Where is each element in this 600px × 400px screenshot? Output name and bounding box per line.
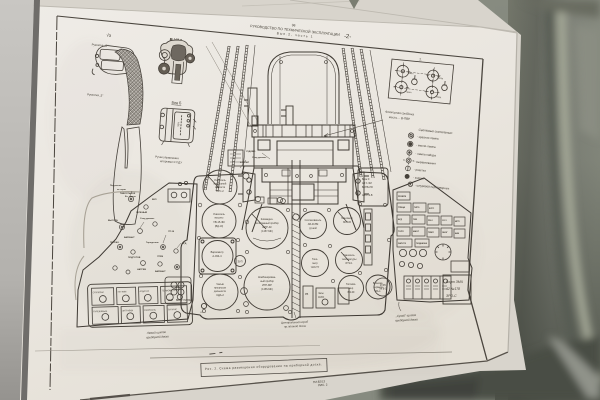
svg-text:АЧХО: АЧХО [318,296,324,299]
svg-text:(ВД-10): (ВД-10) [215,225,223,228]
svg-text:ПЕРКАЧ: ПЕРКАЧ [110,241,119,244]
svg-text:АЗ У-ЧМ: АЗ У-ЧМ [362,182,372,185]
svg-text:мер: мер [349,287,354,290]
svg-text:ИТЭ-1: ИТЭ-1 [345,262,353,265]
svg-text:ВКЛ: ВКЛ [152,199,157,201]
svg-text:пр.лётной доски: пр.лётной доски [284,324,307,329]
svg-text:НА-7ММ: НА-7ММ [118,290,127,293]
svg-text:ПТИЦА: ПТИЦА [398,206,406,209]
svg-text:БАЛАНС: БАЛАНС [168,308,177,311]
svg-text:скорости: скорости [215,186,226,189]
svg-text:Часы: Часы [318,293,324,295]
svg-text:-2-: -2- [344,34,352,41]
svg-text:√з: √з [106,33,111,38]
svg-text:температуры: температуры [342,258,357,261]
svg-text:Сход данных: Сход данных [252,157,267,159]
svg-text:РУЛЕЖЕВЫЕ: РУЛЕЖЕВЫЕ [93,311,108,313]
svg-text:СОЧ: СОЧ [442,220,447,222]
svg-text:ВАРИАНТ: ВАРИАНТ [155,270,166,273]
svg-text:КУРС: КУРС [429,208,435,210]
svg-text:ЗРО-С: ЗРО-С [446,294,457,298]
svg-text:Топливо-: Топливо- [346,283,356,286]
svg-text:ПОДГОТОВ: ПОДГОТОВ [128,257,141,259]
svg-text:ВАРИАНТ: ВАРИАНТ [124,236,135,239]
svg-text:Ел. щиток: Ел. щиток [125,196,137,198]
svg-text:Вариометр: Вариометр [211,251,224,254]
svg-text:Комбинирован-: Комбинирован- [258,276,276,279]
svg-text:Манометр: Манометр [341,217,353,220]
svg-text:ЭУП: ЭУП [238,261,243,264]
svg-text:Сход данных: Сход данных [140,218,155,220]
svg-text:Согласователь: Согласователь [305,219,322,222]
svg-text:СДА-2: СДА-2 [216,293,224,297]
svg-text:ТАБЛОТЬНОЕ: ТАБЛОТЬНОЕ [120,192,136,195]
svg-text:АЗТР-2-В: АЗТР-2-В [362,194,373,197]
svg-text:пилотажный прибор: пилотажный прибор [255,222,279,225]
svg-text:РИС. 2: РИС. 2 [318,383,328,388]
svg-text:Вид Б: Вид Б [171,101,182,106]
svg-text:(1156-МК): (1156-МК) [261,288,273,291]
svg-text:Тахо-: Тахо- [312,258,318,261]
svg-text:РВ: РВ [305,293,309,296]
svg-text:ЧАЗ-ТУ: ЧАЗ-ТУ [311,266,320,269]
svg-text:НАГРЕВ: НАГРЕВ [137,268,146,271]
svg-text:метр: метр [312,262,318,265]
svg-text:96: 96 [292,23,296,27]
svg-text:ТОПЛ: ТОПЛ [398,231,404,233]
svg-text:МРП: МРП [455,221,460,223]
svg-text:АВ-4СЛМ: АВ-4СЛМ [308,223,319,226]
svg-text:ЗЕЛЁНЫЙ: ЗЕЛЁНЫЙ [136,211,148,214]
svg-text:ВЫСОТА: ВЫСОТА [108,219,118,222]
svg-text:СКОРОСТЬ: СКОРОСТЬ [144,310,157,312]
svg-text:ЛТ-39: ЛТ-39 [168,231,175,233]
svg-text:высоты: высоты [215,217,224,220]
svg-text:ТЕРМОМЕТР: ТЕРМОМЕТР [162,290,176,292]
svg-text:Блок 9: Блок 9 [362,178,370,181]
svg-text:ЛТЗМ: ЛТЗМ [157,256,163,258]
svg-text:1.: 1. [419,57,422,61]
svg-text:МАСЛ: МАСЛ [413,230,419,233]
svg-text:ГИРО: ГИРО [414,207,420,209]
svg-text:МГВ-1: МГВ-1 [380,289,387,291]
svg-text:А-034-4: А-034-4 [212,254,222,258]
svg-text:ручной: ручной [309,227,317,230]
svg-text:дальности: дальности [214,290,227,293]
svg-text:АГД: АГД [398,218,403,221]
svg-text:ОБОГ: ОБОГ [442,232,449,234]
svg-text:Борт ЗМЧ: Борт ЗМЧ [446,280,464,284]
svg-text:ЗАПУСК: ЗАПУСК [398,242,407,245]
svg-text:(1157-МК): (1157-МК) [261,230,273,233]
svg-text:ПОДКАЧКА: ПОДКАЧКА [416,242,428,245]
svg-text:ШГР-4К: ШГР-4К [262,225,272,229]
svg-text:Командно-: Командно- [261,218,274,221]
svg-text:АКБ: АКБ [455,232,460,235]
svg-text:АЗС: АЗС [176,122,179,127]
svg-text:Указатель: Указатель [343,254,355,257]
svg-text:не горит: не горит [117,189,127,191]
svg-text:КУРС: КУРС [380,285,386,287]
svg-text:УВ-15-ФК: УВ-15-ФК [213,220,225,224]
svg-text:Подсветка: Подсветка [110,185,122,187]
svg-text:ТЕМП: ТЕМП [428,232,434,234]
svg-text:АГД: АГД [182,242,187,245]
svg-text:Гиродатчик: Гиродатчик [146,242,159,244]
svg-text:ный прибор: ный прибор [260,280,274,283]
svg-text:БСПБ-ЛЯ: БСПБ-ЛЯ [362,186,373,189]
svg-text:КУС-2: КУС-2 [216,189,224,193]
svg-text:РЕЗЕРВ: РЕЗЕРВ [398,196,407,198]
svg-text:АГДАЛ-Я: АГДАЛ-Я [140,290,150,293]
svg-text:МСЭ-В: МСЭ-В [343,221,351,224]
svg-text:42 №178: 42 №178 [446,287,460,291]
svg-text:ИГР-МР: ИГР-МР [262,283,272,287]
svg-text:ОТКЛЮЧИ: ОТКЛЮЧИ [93,292,104,294]
svg-text:ЗАГРУЗКИ: ЗАГРУЗКИ [122,309,133,312]
svg-text:СУДОВО֋: СУДОВО֋ [246,151,256,153]
